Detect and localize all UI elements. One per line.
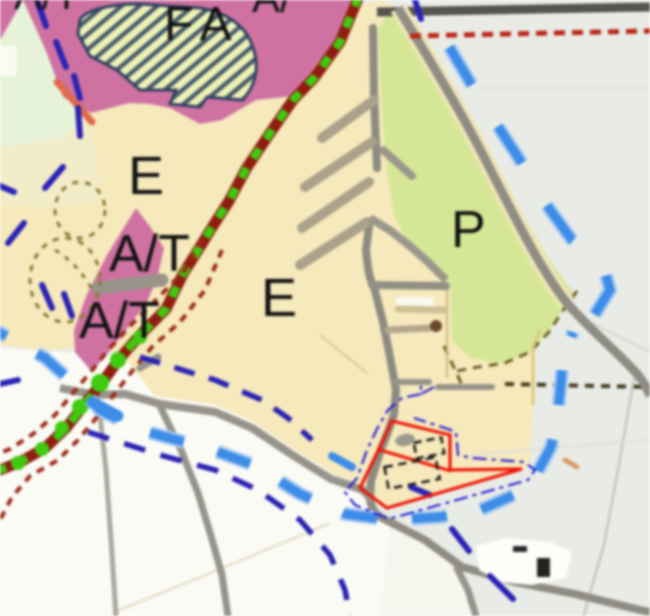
svg-text:A/T: A/T (109, 225, 190, 283)
svg-text:E: E (261, 268, 297, 328)
svg-text:FA: FA (164, 0, 241, 51)
svg-text:P: P (451, 201, 486, 259)
svg-text:E: E (128, 146, 164, 206)
svg-text:A/T: A/T (14, 0, 79, 18)
svg-text:A/: A/ (252, 0, 292, 21)
svg-text:A/T: A/T (79, 292, 160, 350)
